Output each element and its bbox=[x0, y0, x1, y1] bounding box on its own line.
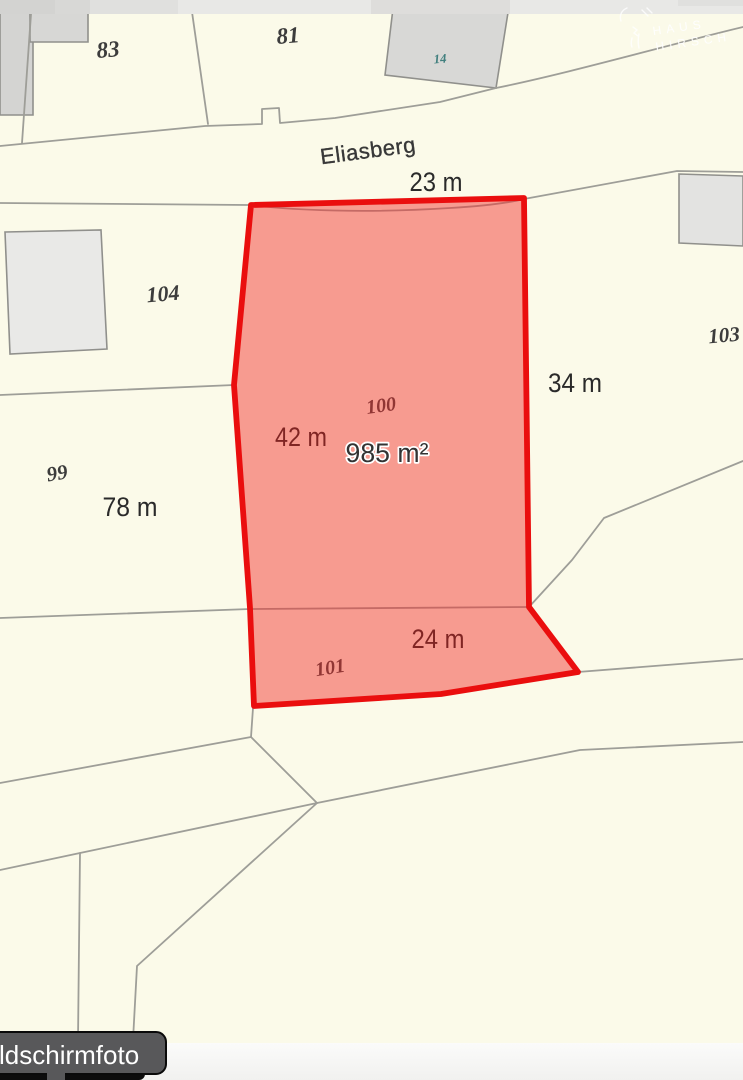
svg-text:103: 103 bbox=[707, 322, 740, 349]
svg-text:23 m: 23 m bbox=[410, 167, 463, 197]
svg-text:104: 104 bbox=[145, 280, 180, 308]
svg-text:14: 14 bbox=[433, 50, 448, 66]
svg-text:99: 99 bbox=[45, 459, 70, 486]
svg-text:78 m: 78 m bbox=[103, 492, 158, 522]
svg-text:83: 83 bbox=[95, 36, 120, 63]
svg-text:34 m: 34 m bbox=[548, 368, 602, 398]
svg-text:985 m²: 985 m² bbox=[346, 438, 429, 468]
svg-text:81: 81 bbox=[275, 22, 300, 49]
